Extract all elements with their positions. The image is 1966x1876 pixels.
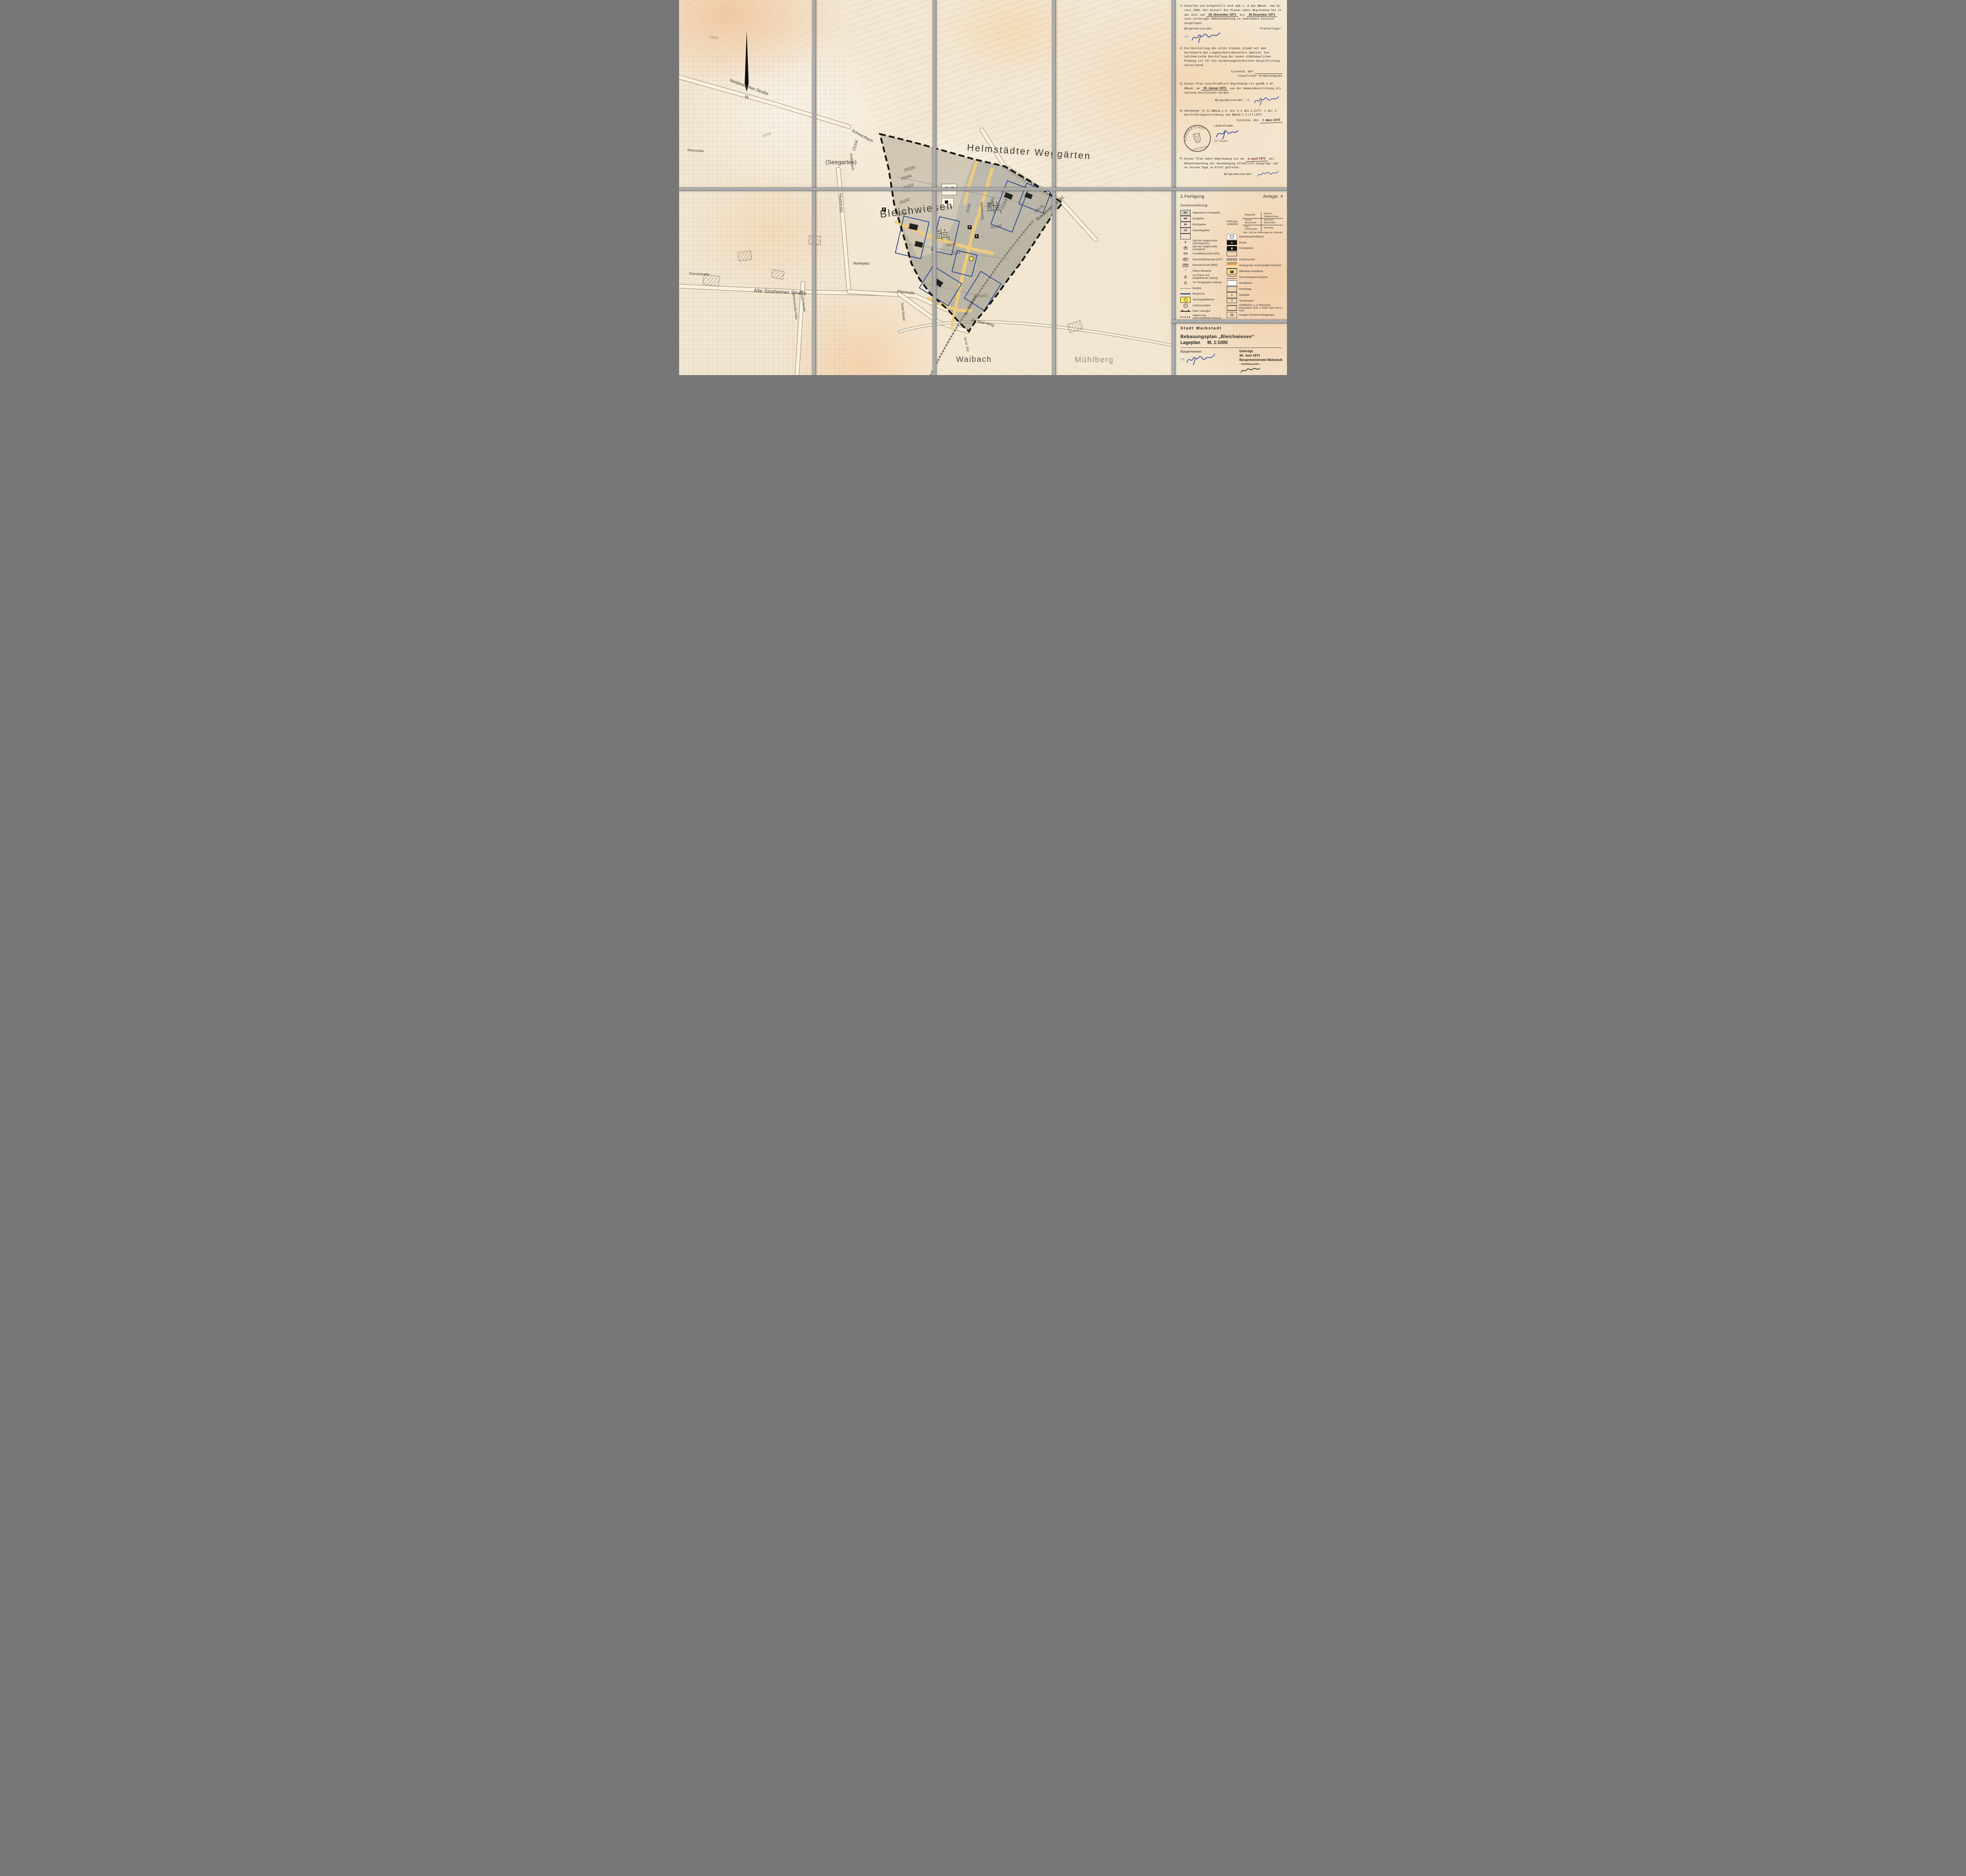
legend-item: ♙ Spielplatz	[1227, 292, 1283, 298]
legend-item: MD Dorfgebiet	[1180, 216, 1224, 222]
signature-icon	[1255, 170, 1282, 178]
plan-type: Lageplan	[1180, 340, 1200, 345]
legend-symbol-icon	[1227, 263, 1237, 269]
map-label: 25186	[990, 224, 1001, 230]
signature-icon	[1185, 353, 1217, 365]
legend-item: P Öffentliche Parkfläche	[1227, 269, 1283, 274]
title-block: Stadt Waibstadt Bebauungsplan „Bleichwie…	[1176, 324, 1287, 375]
map-marker-v: V	[975, 234, 979, 238]
map-label: Str.Nr. 292	[963, 337, 970, 352]
map-label: Dammstraße	[689, 272, 710, 277]
legend-item: Strassenbegrenzungslinie	[1227, 274, 1283, 280]
legend-left-column: WA Allgemeines Wohngebiet MD Dorfgebiet …	[1180, 210, 1224, 319]
legend-symbol-icon	[1227, 305, 1237, 311]
map-label: 25192	[950, 250, 961, 256]
legend-item: WA Allgemeines Wohngebiet	[1180, 210, 1224, 216]
legend-item: Gemeinbedarfsflächen	[1227, 234, 1283, 240]
legend-item: 3,0 Baumassenzahl (BMZ)	[1180, 262, 1224, 268]
anlage-label: Anlage: 4	[1263, 194, 1283, 199]
legend-symbol-icon: WA	[1180, 210, 1191, 216]
signer-name: Dr. Sieber	[1214, 140, 1228, 143]
legend-symbol-icon	[1227, 259, 1237, 261]
legend-item: Gehweg bzw. Schutzstreifen Fahrbahn	[1227, 263, 1283, 269]
note-number: 3)	[1180, 82, 1184, 105]
legend-item: ° Offene Bauweise	[1180, 268, 1224, 274]
note-number: 1)	[1180, 4, 1184, 43]
map-label: 23559	[761, 131, 772, 138]
map-label: 25204	[900, 174, 912, 181]
mayor-label: Bürgermeister:	[1180, 349, 1202, 353]
landratsamt-seal-icon: LANDRATSAMT SINSHEIM	[1180, 121, 1215, 156]
legend-symbol-icon: II	[1180, 240, 1191, 245]
legend-item: Baulinie	[1180, 285, 1224, 291]
map-label: Ritterstraße	[687, 148, 704, 153]
legend-symbol-icon: 0,7	[1180, 257, 1191, 262]
map-label: 25199	[965, 203, 972, 214]
legend-item: Baugrenze	[1180, 291, 1224, 297]
map-label: von Sinsheim	[963, 294, 978, 316]
map-label: Bleichwiesen	[879, 199, 954, 221]
scanned-bebauungsplan: NNeidensteiner StraßeRitterstraße(Seegar…	[679, 0, 1287, 375]
legend-symbol-icon	[1180, 288, 1191, 289]
versorgung-marker	[969, 256, 974, 261]
legend-symbol-icon: °	[1180, 269, 1191, 273]
legend-symbol-icon	[1227, 286, 1237, 292]
procedure-notes: 1) Entwrfen und Aufgestellt nach §§8 u. …	[1176, 0, 1287, 188]
legend-item: MI Mischgebiet	[1180, 222, 1224, 228]
map-label: Mühlberg	[1075, 356, 1114, 365]
legend-symbol-icon: △	[1180, 280, 1191, 285]
note-1: 1) Entwrfen und Aufgestellt nach §§8 u. …	[1180, 4, 1282, 43]
map-label: Speckerweg	[980, 202, 985, 220]
nutzungsschablone-table: Baugebiet Zahl der Vollgeschosse Grund- …	[1243, 212, 1283, 231]
legend-item: ♟ Kindergarten	[1227, 246, 1283, 252]
map-label: 25206	[852, 140, 859, 151]
map-label: 24959	[977, 293, 989, 299]
map-marker-p: P	[882, 208, 886, 212]
note-3: 3) Dieser Plan einschließlich Begründung…	[1180, 82, 1282, 105]
note-number: 5)	[1180, 156, 1184, 178]
gefertigt-label: Gefertigt:	[1239, 349, 1254, 353]
legend-symbol-icon: MI	[1180, 222, 1191, 228]
legend-symbol-icon	[1180, 293, 1191, 294]
legend-right-column: Nutzungs- schablone: Baugebiet Zahl der …	[1227, 210, 1283, 319]
legend-item: △ Umformerstation	[1180, 303, 1224, 309]
nutzungsschablone: Nutzungs- schablone: Baugebiet Zahl der …	[1227, 212, 1283, 234]
legend-symbol-icon: 0,3	[1180, 251, 1191, 256]
legend-item: △ nur Einzel- und Doppelhäuser zulässig	[1180, 274, 1224, 280]
legend-symbol-icon: P	[1227, 269, 1237, 274]
map-label: Pfarrstraße	[897, 289, 915, 295]
gefertigt-date: 30. Juni 1971	[1239, 353, 1260, 357]
office-dept: - Stadtbauamt -	[1239, 363, 1261, 366]
legend-symbol-icon	[1180, 234, 1191, 239]
note-2: 2) Die Darstellung des alten Standes sti…	[1180, 46, 1282, 78]
map-label: Dr. Weil-Weg	[971, 318, 994, 327]
legend-item: Zufahrtsverbot	[1227, 257, 1283, 263]
legend-symbol-icon	[1227, 276, 1237, 279]
map-label: Alte Sinsheimer Straße	[754, 287, 806, 296]
fold-strip	[1172, 320, 1287, 324]
fold-strip	[679, 188, 1287, 191]
map-label: Hauptstraße	[839, 193, 844, 213]
map-label: Neidensteiner Straße	[729, 78, 769, 97]
legend-item: V Verkehrsgrün	[1227, 298, 1283, 304]
map-label: 25190	[946, 242, 956, 247]
legend-item: Versorgungsflächen	[1180, 297, 1224, 303]
legend-item: Elekt. Leitungen	[1180, 309, 1224, 315]
legend-item: Mit Leitungsrechten belastete Flächen	[1227, 318, 1283, 319]
map-label: Spital-Straße	[900, 302, 906, 321]
legend-symbol-icon	[1227, 280, 1237, 286]
note-5: 5) Dieser Plan nebst Begründung ist am 4…	[1180, 156, 1282, 178]
legend-symbol-icon	[1227, 252, 1237, 256]
city-name: Stadt Waibstadt	[1180, 326, 1282, 331]
signature-icon	[1252, 95, 1282, 105]
legend-panel: 2.Fertigung Anlage: 4 Zeichenerklärung: …	[1176, 191, 1287, 319]
signature-icon	[1239, 366, 1261, 374]
legend-symbol-icon: II	[1180, 246, 1191, 250]
map-label: 23662	[709, 35, 719, 40]
legend-item: △ nur Hausgruppen zulässig	[1180, 280, 1224, 285]
legend-symbol-icon: ♟	[1227, 246, 1237, 251]
legend-item: Parkanlage	[1227, 286, 1283, 292]
legend-symbol-icon: Ga GGa	[1227, 312, 1237, 318]
legend-symbol-icon: 3,0	[1180, 263, 1191, 268]
note-number: 2)	[1180, 46, 1184, 78]
legend-symbol-icon: MD	[1180, 216, 1191, 222]
legend-item	[1227, 251, 1283, 257]
fertigung-label: 2.Fertigung	[1180, 194, 1204, 199]
legend-item: 0,3 Grundflächenzahl (GRZ)	[1180, 251, 1224, 257]
legend-item: II Zahl der Vollgeschoße (Höchstgrenze)	[1180, 239, 1224, 245]
legend-heading: Zeichenerklärung:	[1180, 204, 1283, 207]
map-label: N	[745, 94, 749, 100]
map-label: 25202	[899, 197, 911, 206]
nutzungsschablone-mark: WAII0,30,6o	[986, 200, 1001, 215]
map-label: Helmstädter Weggärten	[966, 142, 1091, 162]
legend-symbol-icon: V	[1227, 298, 1237, 303]
legend-symbol-icon: ▲	[1227, 240, 1237, 245]
legend-item: Ga GGa Garagen Gemeinschaftsgaragen	[1227, 312, 1283, 318]
legend-symbol-icon	[1180, 297, 1191, 303]
map-label: 25183	[1000, 199, 1009, 210]
note-4: 4) Genehmigt (§ 11 BBauG.i.V. mit § 2 Ab…	[1180, 109, 1282, 153]
office-name: Bürgermeisteramt Waibstadt	[1239, 358, 1282, 362]
map-label: Waibach	[956, 355, 992, 364]
plan-scale: M. 1:1000	[1207, 340, 1228, 345]
legend-item	[1180, 234, 1224, 239]
legend-symbol-icon	[1180, 316, 1191, 317]
legend-symbol-icon	[1180, 311, 1191, 312]
legend-item: Abgrenzung unterschiedlicher Nutzung	[1180, 314, 1224, 319]
handwritten-addition: § 111 LBO)	[1246, 113, 1262, 116]
legend-symbol-icon: ♙	[1227, 292, 1237, 298]
map-marker-p: P	[968, 225, 972, 229]
plan-title: Bebauungsplan „Bleichwiesen“	[1180, 335, 1282, 339]
signature-icon	[1214, 128, 1239, 139]
date-display-start: 29. November 1971	[1206, 13, 1238, 17]
legend-symbol-icon: △	[1180, 274, 1191, 279]
legend-symbol-icon: GE	[1180, 228, 1191, 234]
legend-item: II Zahl der Vollgeschoße (Zwingend)	[1180, 245, 1224, 251]
legend-item: ▲ Schule	[1227, 240, 1283, 246]
legend-symbol-icon: △	[1180, 303, 1191, 308]
approval-date-stamp: 7. März 1972	[1260, 118, 1282, 123]
legend-item: Sichtflächen; v. d. Bebauung freizuhalte…	[1227, 304, 1283, 312]
map-label: Marktplatz	[853, 261, 870, 265]
legend-item: Grünflächen	[1227, 280, 1283, 286]
effective-date-stamp: 4. April 1972	[1246, 156, 1268, 162]
svg-text:SINSHEIM: SINSHEIM	[1191, 145, 1208, 152]
date-display-satzung: 19. Januar 1972	[1201, 86, 1228, 90]
date-display-end: 30 Dezember 1971	[1247, 13, 1278, 17]
legend-item: GE Gewerbegebiet	[1180, 228, 1224, 234]
legend-symbol-icon	[1227, 234, 1237, 240]
map-label: 25205	[904, 166, 915, 173]
legend-item: 0,7 Geschoßflächenzahl (GFZ)	[1180, 257, 1224, 263]
map-label: Landesstraße 549a	[792, 292, 798, 320]
signature-icon	[1190, 31, 1222, 43]
